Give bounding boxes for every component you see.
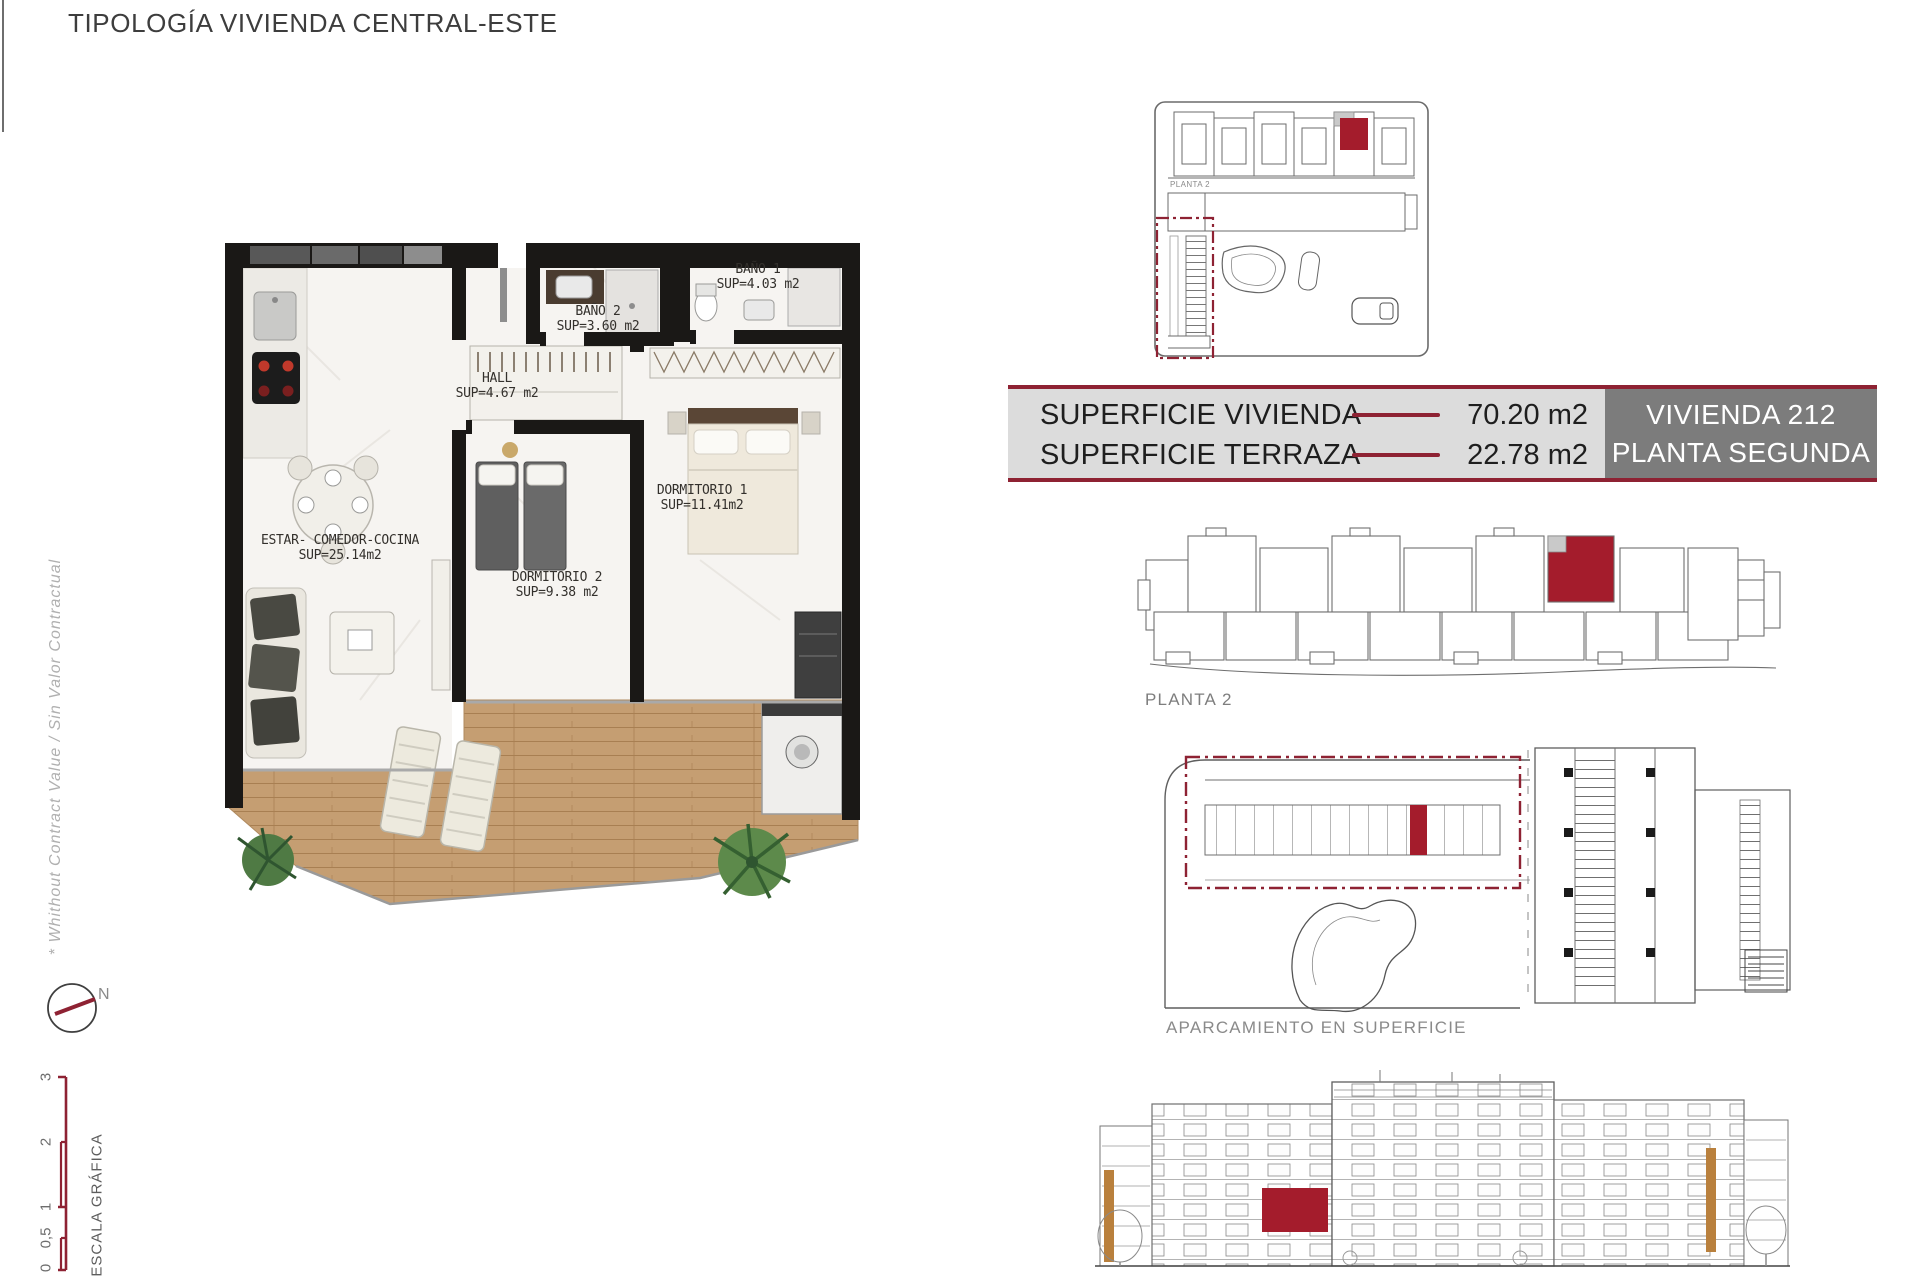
room-area: SUP=9.38 m2: [512, 585, 602, 600]
surface-terraza-label: SUPERFICIE TERRAZA: [1040, 439, 1361, 472]
room-area: SUP=4.03 m2: [717, 277, 800, 292]
room-name: DORMITORIO 1: [657, 483, 747, 498]
disclaimer-text: * Whithout Contract Value / Sin Valor Co…: [47, 559, 65, 955]
scale-tick-2: 2: [38, 1138, 55, 1146]
room-label-bano1: BAÑO 1 SUP=4.03 m2: [717, 262, 800, 292]
parking-label: APARCAMIENTO EN SUPERFICIE: [1166, 1018, 1467, 1038]
page-edge-line: [2, 0, 4, 132]
room-label-dormitorio2: DORMITORIO 2 SUP=9.38 m2: [512, 570, 602, 600]
scale-bar-label: ESCALA GRÁFICA: [89, 1133, 106, 1276]
surface-summary-table: SUPERFICIE VIVIENDA 70.20 m2 SUPERFICIE …: [1008, 385, 1877, 482]
scale-tick-0: 0: [38, 1264, 55, 1272]
room-area: SUP=3.60 m2: [557, 319, 640, 334]
room-area: SUP=4.67 m2: [456, 386, 539, 401]
scale-bar: [50, 1070, 80, 1276]
planta2-key-diagram: [1130, 524, 1790, 684]
row-connector-line: [1352, 453, 1440, 457]
unit-number: VIVIENDA 212: [1646, 396, 1836, 434]
unit-id-box: VIVIENDA 212 PLANTA SEGUNDA: [1605, 389, 1877, 478]
scale-tick-05: 0,5: [38, 1228, 55, 1249]
site-key-plan: [1150, 96, 1440, 364]
room-label-bano2: BAÑO 2 SUP=3.60 m2: [557, 304, 640, 334]
unit-floor: PLANTA SEGUNDA: [1612, 434, 1871, 472]
room-name: DORMITORIO 2: [512, 570, 602, 585]
scale-tick-1: 1: [38, 1203, 55, 1211]
room-label-dormitorio1: DORMITORIO 1 SUP=11.41m2: [657, 483, 747, 513]
room-area: SUP=11.41m2: [657, 498, 747, 513]
building-elevation: [1095, 1062, 1795, 1274]
floor-key-label: PLANTA 2: [1145, 690, 1233, 710]
room-area: SUP=25.14m2: [261, 548, 419, 563]
room-name: ESTAR- COMEDOR-COCINA: [261, 533, 419, 548]
surface-vivienda-value: 70.20 m2: [1448, 399, 1588, 432]
row-connector-line: [1352, 413, 1440, 417]
plan-sheet: TIPOLOGÍA VIVIENDA CENTRAL-ESTE: [0, 0, 1920, 1280]
scale-tick-3: 3: [38, 1073, 55, 1081]
compass-north-label: N: [98, 986, 110, 1004]
room-name: HALL: [456, 371, 539, 386]
parking-diagram: [1150, 738, 1800, 1023]
room-label-estar: ESTAR- COMEDOR-COCINA SUP=25.14m2: [261, 533, 419, 563]
site-plan-label: PLANTA 2: [1170, 180, 1210, 189]
surface-terraza-value: 22.78 m2: [1448, 439, 1588, 472]
page-title: TIPOLOGÍA VIVIENDA CENTRAL-ESTE: [68, 8, 558, 39]
surface-vivienda-label: SUPERFICIE VIVIENDA: [1040, 399, 1361, 432]
room-name: BAÑO 1: [717, 262, 800, 277]
room-label-hall: HALL SUP=4.67 m2: [456, 371, 539, 401]
room-name: BAÑO 2: [557, 304, 640, 319]
